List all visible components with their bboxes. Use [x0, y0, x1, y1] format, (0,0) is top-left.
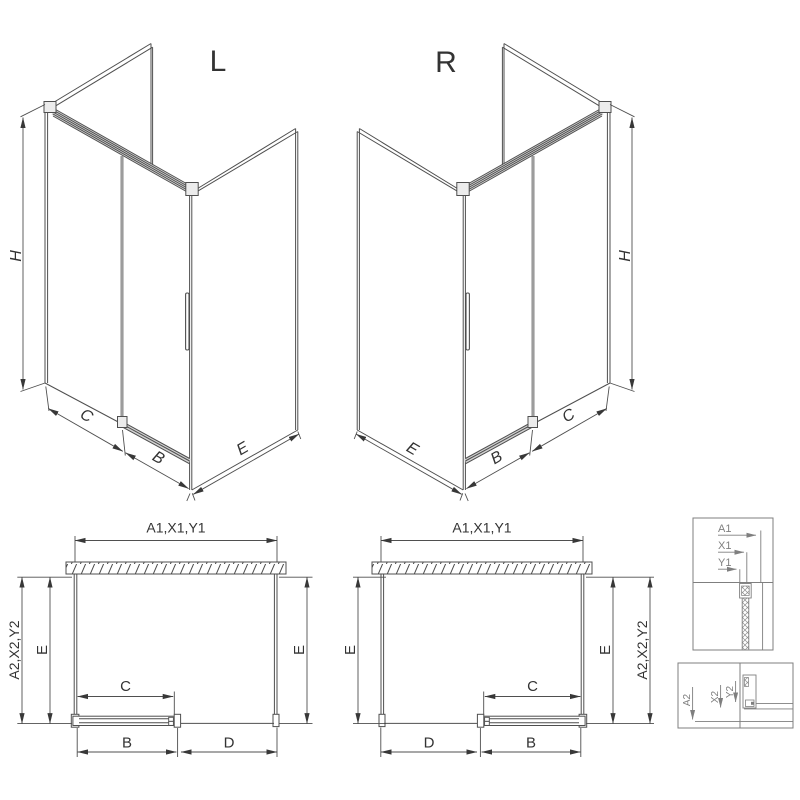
iso-view-right — [354, 44, 634, 502]
wall-hatch-strip — [372, 562, 592, 574]
detail-label-x2: X2 — [710, 690, 721, 703]
rail-bracket — [174, 714, 180, 727]
technical-drawing-page: L R H H C B E E B C A1,X1,Y1 E A2,X2,Y2 … — [0, 0, 800, 800]
detail-label-x1: X1 — [718, 540, 731, 552]
dim-label-d-left-plan: D — [224, 735, 235, 752]
wall-end-cap — [379, 714, 385, 726]
dim-label-b-left-plan: B — [122, 735, 132, 752]
dim-label-height-left: H — [8, 250, 25, 262]
detail-label-a1: A1 — [718, 523, 731, 535]
wall-hatch-strip — [66, 562, 286, 574]
door-edge-profile — [485, 717, 490, 721]
dim-label-e-left-right-plan: E — [342, 645, 359, 655]
rail-section-solid — [745, 678, 749, 687]
wall-profile-bracket-inner — [742, 586, 750, 596]
dim-label-height-right: H — [617, 250, 634, 262]
shower-enclosure-drawing: L R H H C B E E B C A1,X1,Y1 E A2,X2,Y2 … — [0, 0, 800, 800]
dim-label-b-right-plan: B — [526, 735, 536, 752]
dim-label-depth-codes-right-plan: A2,X2,Y2 — [634, 620, 650, 679]
glass-walls — [381, 574, 584, 715]
dim-label-e-right-left-plan: E — [291, 645, 308, 655]
rail-section-screw — [751, 702, 754, 705]
detail-label-y2: Y2 — [725, 685, 736, 698]
glass-walls — [74, 574, 277, 715]
door-rail — [479, 716, 585, 725]
dim-label-width-codes-right-plan: A1,X1,Y1 — [452, 520, 511, 536]
wall-end-cap — [273, 714, 279, 726]
door-edge-profile — [169, 717, 174, 721]
iso-view-left — [21, 44, 301, 502]
dim-label-e-iso-right: E — [403, 439, 421, 459]
door-edge-profile — [485, 721, 490, 725]
door-rail — [73, 716, 179, 725]
dim-label-b-iso-left: B — [149, 448, 167, 468]
dim-label-b-iso-right: B — [488, 448, 506, 468]
view-title-right: R — [435, 46, 457, 79]
rail-bracket — [477, 714, 483, 727]
dim-label-c-left-plan: C — [120, 678, 131, 695]
dim-label-e-right-right-plan: E — [597, 645, 614, 655]
dim-label-c-right-plan: C — [527, 678, 538, 695]
detail-label-y1: Y1 — [718, 557, 731, 569]
dim-label-e-iso-left: E — [234, 439, 252, 459]
plan-view-left — [17, 536, 312, 757]
detail-label-a2: A2 — [682, 693, 693, 706]
door-edge-profile — [169, 721, 174, 725]
dim-label-e-left-plan: E — [34, 645, 51, 655]
detail-wall-profile-top — [693, 518, 773, 650]
dim-label-depth-codes-left-plan: A2,X2,Y2 — [6, 620, 22, 679]
view-title-left: L — [210, 45, 227, 78]
dim-label-d-right-plan: D — [424, 735, 435, 752]
dim-label-width-codes-left-plan: A1,X1,Y1 — [146, 520, 205, 536]
